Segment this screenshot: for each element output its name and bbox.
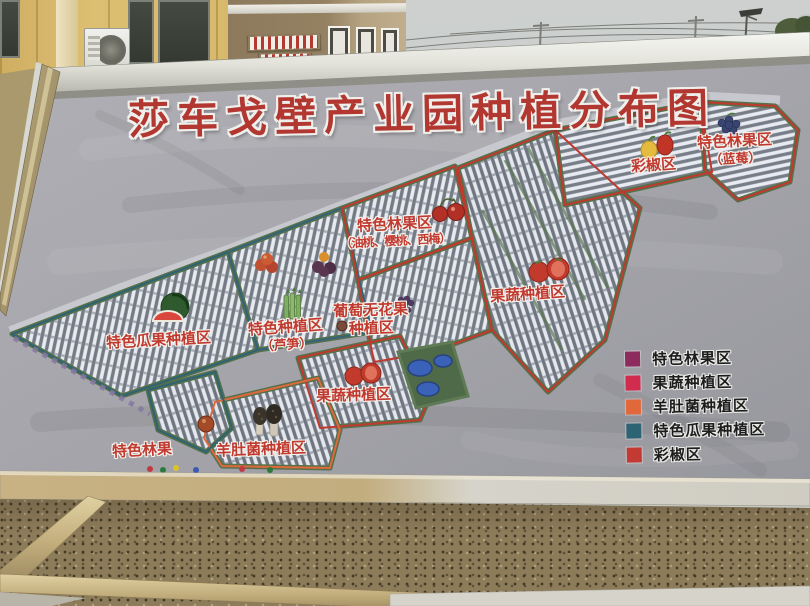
photo-scene: 莎车戈壁产业园种植分布图 特色瓜果种植区 特色种植区 （芦笋） 特色林果区 （油… (0, 0, 810, 606)
map-label-pepper: 彩椒区 (630, 152, 676, 176)
legend-swatch (625, 375, 640, 390)
map-label-veg-bottom: 果蔬种植区 (316, 383, 392, 407)
diagonal-strut (0, 496, 106, 588)
map-label-forest-fruit: 特色林果 (111, 437, 172, 461)
legend-item: 果蔬种植区 (625, 372, 810, 390)
legend-swatch (626, 399, 641, 414)
legend-swatch (627, 447, 642, 462)
legend-label: 彩椒区 (654, 443, 702, 465)
legend-label: 特色瓜果种植区 (653, 418, 765, 441)
map-label-grape-fig: 葡萄无花果 种植区 (327, 301, 414, 339)
map-label-asparagus: 特色种植区 （芦笋） (237, 316, 335, 356)
legend-swatch (626, 423, 641, 438)
legend-swatch (625, 351, 640, 366)
sign-title: 莎车戈壁产业园种植分布图 (127, 74, 716, 146)
legend-label: 羊肚菌种植区 (653, 395, 749, 418)
map-label-blueberry: 特色林果区 （蓝莓） (691, 131, 779, 168)
map-label-morel: 羊肚菌种植区 (216, 436, 307, 460)
apple-icon (198, 416, 214, 432)
sign-supports (0, 471, 810, 606)
bottom-silver-rail (390, 586, 810, 606)
legend-label: 果蔬种植区 (652, 371, 732, 393)
legend-item: 彩椒区 (627, 444, 810, 462)
legend-item: 羊肚菌种植区 (626, 396, 810, 414)
map-legend: 特色林果区 果蔬种植区 羊肚菌种植区 特色瓜果种植区 彩椒区 (625, 348, 810, 471)
legend-item: 特色林果区 (625, 348, 810, 366)
legend-label: 特色林果区 (652, 347, 732, 369)
legend-item: 特色瓜果种植区 (626, 420, 810, 438)
